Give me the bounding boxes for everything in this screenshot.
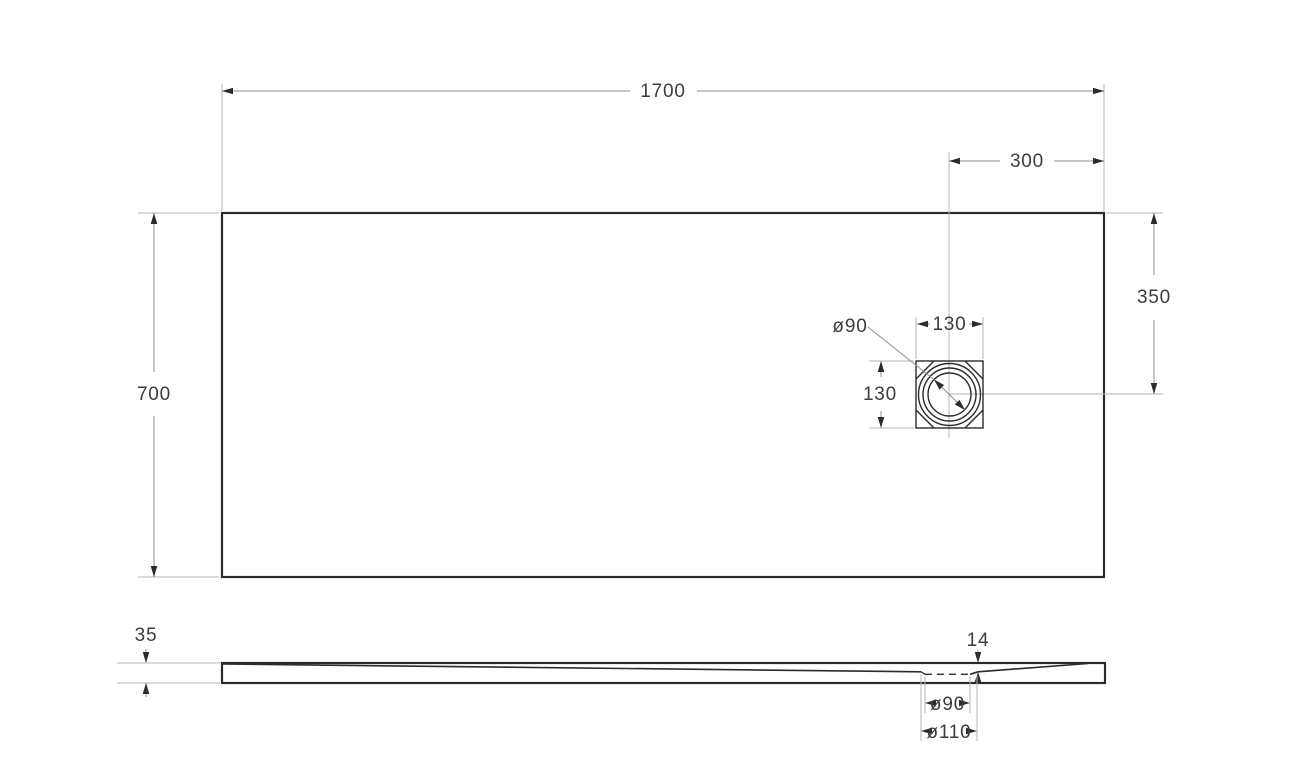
dim-label-drain-thickness: 14 <box>967 630 990 651</box>
arrowhead <box>1151 213 1158 224</box>
dim-length-1700: 1700 <box>222 81 1104 211</box>
recess-chamfer-left <box>921 672 925 675</box>
dim-label-drain-hole: ø90 <box>930 694 965 715</box>
arrowhead <box>972 321 983 328</box>
tray-outline-top-view <box>222 213 1104 577</box>
dim-drain-offset-300: 300 <box>949 151 1104 172</box>
dim-label-width: 700 <box>137 384 171 405</box>
arrowhead <box>1093 88 1104 95</box>
side-profile <box>222 663 1105 683</box>
drawing-svg: 1700 700 300 350 <box>0 0 1300 780</box>
arrowhead <box>1093 158 1104 165</box>
dim-label-drain-recess: ø110 <box>926 722 971 743</box>
dim-drain-offset-350: 350 <box>1106 213 1171 394</box>
dim-label-drain-diameter: ø90 <box>832 316 867 337</box>
arrowhead <box>975 652 982 663</box>
dim-label-drain-offset-x: 300 <box>1010 151 1044 172</box>
dim-label-drain-offset-y: 350 <box>1137 287 1171 308</box>
arrowhead <box>143 683 150 694</box>
top-view: 1700 700 300 350 <box>137 81 1171 577</box>
dim-label-thickness: 35 <box>135 625 158 646</box>
arrowhead <box>143 652 150 663</box>
arrowhead <box>917 321 928 328</box>
dim-thickness-35: 35 <box>117 625 220 697</box>
dim-label-drain-box-width: 130 <box>932 314 966 335</box>
arrowhead <box>975 672 982 682</box>
arrowhead <box>151 566 158 577</box>
floor-slope-left <box>223 664 921 672</box>
arrowhead <box>222 88 233 95</box>
dim-label-length: 1700 <box>640 81 685 102</box>
technical-drawing-page: 1700 700 300 350 <box>0 0 1300 780</box>
arrowhead <box>949 158 960 165</box>
arrowhead <box>151 213 158 224</box>
arrowhead <box>878 361 885 372</box>
dim-width-700: 700 <box>137 213 219 577</box>
arrowhead <box>878 417 885 428</box>
arrowhead <box>1151 383 1158 394</box>
side-view: 35 14 ø90 ø110 <box>117 625 1105 743</box>
floor-slope-right <box>970 664 1088 675</box>
dim-label-drain-box-height: 130 <box>863 384 897 405</box>
dim-drain-box-130-vertical: 130 <box>863 361 914 428</box>
dim-drain-hole-90: ø90 <box>925 676 970 715</box>
